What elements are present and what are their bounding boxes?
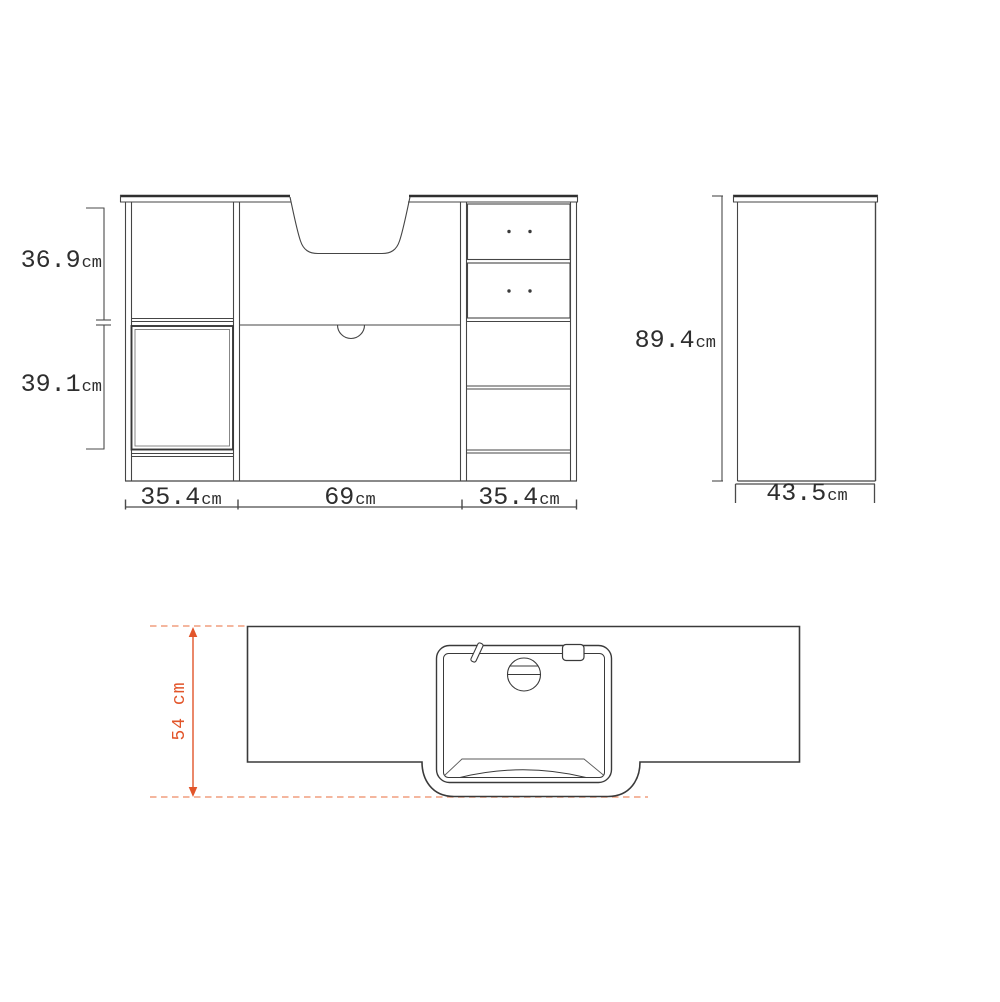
left-door: [132, 326, 234, 450]
dimension-unit: cm: [827, 487, 847, 506]
sink-top-view: [437, 642, 612, 782]
dimension-unit: cm: [82, 378, 102, 397]
front-middle-section: [240, 325, 460, 339]
dimension-value: 69: [324, 483, 354, 512]
arrowhead-down-icon: [189, 787, 198, 797]
front-countertop: [120, 195, 578, 202]
dimension-value: 36.9: [21, 246, 81, 275]
soap-dispenser-icon: [563, 645, 585, 661]
shelf-line: [467, 386, 571, 389]
technical-drawing-page: 36.9cm 39.1cm 35.4cm 69cm 35.4cm 89.4cm …: [0, 0, 1000, 1002]
dimension-label-overall-depth: 54 cm: [171, 681, 189, 740]
dimension-label-center-width: 69cm: [324, 485, 375, 510]
drawer-knob-hole: [507, 289, 510, 292]
finger-notch: [338, 325, 365, 339]
arrowhead-up-icon: [189, 627, 198, 637]
dimension-label-lower-height: 39.1cm: [21, 372, 102, 397]
side-dimension-lines: [712, 196, 875, 503]
front-view-drawing: [86, 195, 578, 510]
drawer-front: [468, 263, 571, 318]
drawer-knob-hole: [528, 230, 531, 233]
dimension-label-right-width: 35.4cm: [478, 485, 559, 510]
dimension-unit: cm: [201, 491, 221, 510]
plinth-line: [131, 454, 234, 457]
dimension-value: 35.4: [478, 483, 538, 512]
drawer-knob-hole: [528, 289, 531, 292]
dimension-unit: cm: [355, 491, 375, 510]
shelf-line: [467, 450, 571, 453]
side-countertop: [733, 195, 878, 202]
shelf-line: [131, 319, 234, 322]
dimension-value: 43.5: [766, 479, 826, 508]
drawer-front: [468, 204, 571, 260]
dimension-value: 35.4: [140, 483, 200, 512]
front-right-section: [467, 204, 571, 453]
dimension-label-depth: 43.5cm: [766, 481, 847, 506]
dimension-unit: cm: [539, 491, 559, 510]
drawer-knob-hole: [507, 230, 510, 233]
dimension-label-overall-height: 89.4cm: [635, 328, 716, 353]
dimension-label-left-width: 35.4cm: [140, 485, 221, 510]
dimension-label-upper-height: 36.9cm: [21, 248, 102, 273]
dimension-unit: cm: [696, 334, 716, 353]
front-left-section: [131, 319, 234, 457]
dimension-value: 39.1: [21, 370, 81, 399]
drain-icon: [508, 658, 541, 691]
top-view-drawing: [150, 626, 800, 797]
dimension-value: 89.4: [635, 326, 695, 355]
front-sink-profile: [290, 197, 410, 254]
side-view-drawing: [712, 195, 878, 503]
side-cabinet-body: [738, 202, 876, 481]
dimension-unit: cm: [82, 254, 102, 273]
